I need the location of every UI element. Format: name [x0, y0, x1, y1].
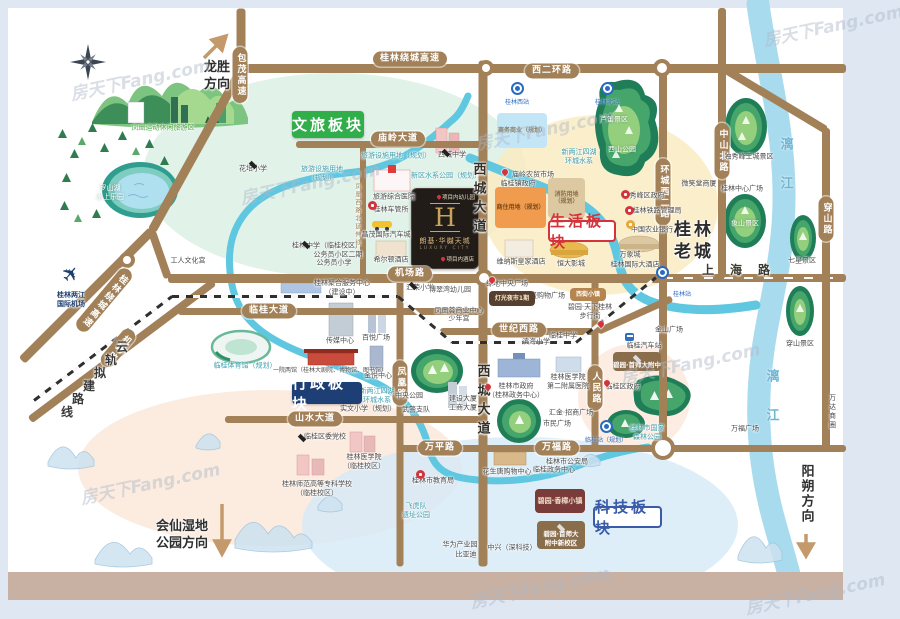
poi-box: 商住用地（规划） [495, 187, 546, 228]
map-label: 穿山景区 [786, 339, 814, 348]
government-icon [368, 201, 377, 210]
map-label: 桂林医学院 （临桂校区） [343, 453, 385, 471]
road-label: 万福路 [535, 441, 579, 456]
map-label: 临桂汽车站 [627, 341, 662, 350]
government-icon [621, 190, 630, 199]
road-junction [653, 59, 671, 77]
map-label: 中央公园 [395, 391, 423, 400]
road-segment [659, 68, 667, 450]
map-label: 汇金·招商广场 [549, 408, 593, 417]
metro-station-icon [511, 82, 524, 95]
map-label: 临桂中学 [549, 331, 577, 340]
district-badge: 文旅板块 [292, 111, 364, 138]
map-label: 比亚迪 [456, 550, 477, 559]
map-label: 桂林师范高等专科学校 （临桂校区） [282, 480, 352, 498]
district-badge: 生活板块 [548, 220, 616, 242]
rail-line-label: 路 [72, 392, 84, 408]
rail-line-label: 建 [83, 379, 95, 395]
map-label: 维纳斯皇家酒店 [497, 257, 546, 266]
road-label: 世纪西路 [492, 323, 546, 338]
map-bottom-band [8, 572, 843, 600]
road-label: 中山北路 [715, 123, 730, 179]
map-label: 传媒中心 [326, 336, 354, 345]
road-label: 人民路 [588, 366, 603, 411]
map-label: 西城大道 [473, 364, 490, 440]
map-label: 桂林老城 [672, 219, 716, 263]
map-label: 凤凰运动休闲旅游区 [132, 123, 195, 132]
map-label: 漓江 [762, 369, 779, 447]
pin-icon [436, 194, 442, 200]
rail-line-label: 轨 [105, 353, 117, 369]
district-badge: 行政板块 [292, 382, 362, 404]
road-segment [397, 278, 404, 566]
map-label: 临桂区委党校 [304, 432, 346, 441]
road-junction [478, 60, 494, 76]
map-label: 滨海小学 [522, 337, 550, 346]
map-label: 桂林中心广场 [721, 184, 763, 193]
government-icon [416, 470, 425, 479]
government-icon [625, 206, 634, 215]
map-label: 新两江四湖 环城水系 [562, 148, 597, 166]
railway-segment [452, 341, 576, 344]
map-label: 桂林市国家 森林公园 [630, 424, 665, 442]
map-label: 中国农业银行 [631, 225, 673, 234]
map-label: 桂林医学院 第二附属医院 [547, 373, 589, 391]
map-label: 万达商圈 [827, 394, 836, 430]
map-label: 希尔顿酒店 [374, 255, 409, 264]
road-label: 庙岭大道 [371, 132, 425, 147]
rail-line-label: 拟 [94, 366, 106, 382]
direction-label: 阳朔方向 [797, 464, 814, 524]
map-label: 金悦中心 [364, 371, 392, 380]
map-label: 罗山湖 水上乐园 [96, 184, 124, 202]
map-label: 万福广场 [731, 424, 759, 433]
poi-box-label: 西街小镇 [576, 291, 600, 299]
metro-station-icon [600, 420, 613, 433]
map-label: 公务员小学 [317, 258, 352, 267]
map-label: 花生唐购物中心 [483, 467, 532, 476]
poi-box: 西街小镇 [570, 288, 606, 301]
school-icon [408, 281, 418, 288]
map-label: 秀峰区政府 [630, 191, 665, 200]
metro-station-label: 桂林西站 [505, 97, 529, 106]
map-label: 桂林聚合服务中心 （建设中） [314, 279, 370, 297]
map-label: 上海路 [702, 263, 786, 279]
road-junction [119, 252, 135, 268]
poi-box-label: 消防用地 （规划） [554, 191, 578, 206]
map-label: 博翠湾幼儿园 [429, 285, 471, 294]
poi-box-label: 碧园·香樟小镇 [538, 497, 583, 506]
map-label: 金山广场 [655, 325, 683, 334]
map-label: 工人文化宫 [171, 256, 206, 265]
poi-box-label: 商住用地（规划） [496, 204, 544, 212]
road-label: 西二环路 [525, 64, 579, 79]
road-label: 临桂大道 [242, 304, 296, 319]
map-label: 昌茂国际汽车城 [362, 230, 411, 239]
metro-station-icon [656, 266, 669, 279]
map-label: 独秀峰王城景区 [725, 152, 774, 161]
metro-station-icon [601, 82, 614, 95]
map-label: 桂林铁路管理局 [633, 206, 682, 215]
road-label: 穿山路 [819, 197, 834, 242]
map-label: 万象城 [620, 250, 641, 259]
school-icon [297, 433, 307, 440]
map-label: 恒大影城 [557, 259, 585, 268]
map-label: 临桂政务中心 [533, 465, 575, 474]
project-hotel-label: 项目内酒店 [441, 255, 474, 263]
school-icon [248, 160, 258, 167]
map-label: 桂林市公安局 [546, 457, 588, 466]
map-label: 桂林车管所 [374, 205, 409, 214]
map-label: 武警支队 [402, 405, 430, 414]
map-label: 中兴（深科技） [488, 543, 537, 552]
map-label: 百悦广场 [362, 333, 390, 342]
project-subtitle: LUXURY CITY [412, 246, 478, 251]
metro-station-label: 临桂站（规划） [585, 435, 627, 444]
road-label: 机场路 [388, 267, 432, 282]
road-label: 桂林绕城高速 [373, 52, 447, 67]
poi-box-label: 碧园·首师大 附中新校区 [544, 530, 579, 546]
bus-station-icon [625, 333, 634, 341]
map-label: 漓江 [776, 137, 793, 215]
road-label: 包茂高速 [233, 47, 248, 103]
map-label: 七星景区 [788, 256, 816, 265]
map-label: 微笑堂商厦 [682, 179, 717, 188]
map-label: 桂林国际大酒店 [611, 260, 660, 269]
map-label: 华为产业园 [443, 540, 478, 549]
map-label: 新两江四湖 环城水系 [360, 387, 395, 405]
poi-box: 碧园·香樟小镇 [535, 489, 585, 513]
poi-box: 碧园·首师大 附中新校区 [537, 521, 585, 549]
district-badge: 科技板块 [593, 506, 662, 528]
map-label: 临桂体育馆（规划） [214, 361, 277, 370]
metro-station-label: 桂林站 [673, 289, 691, 298]
school-icon [301, 240, 311, 247]
map-label: 飞虎队 遗址公园 [402, 502, 430, 520]
map-label: 桂林两江 国际机场 [57, 291, 85, 309]
poi-box: 灯光夜市1期 [489, 291, 535, 306]
school-icon [441, 148, 451, 155]
map-label: 西城大道 [469, 162, 486, 238]
rail-line-label: 云 [116, 340, 128, 356]
map-label: 桂林市政府 （桂林政务中心） [488, 382, 544, 400]
bank-icon [626, 220, 635, 229]
road-label: 万平路 [418, 441, 462, 456]
map-label: 凤凰西路北延伸线 [353, 183, 361, 247]
map-label: 碧园·天下桂林 步行街 [568, 303, 612, 321]
map-label: 旅游综合医院 [373, 192, 415, 201]
map-label: 象山景区 [731, 219, 759, 228]
map-label: 市民广场 [543, 419, 571, 428]
road-segment [225, 416, 484, 423]
map-label: 西山公园 [608, 145, 636, 154]
map-label: 庙岭农贸市场 [512, 170, 554, 179]
map-label: 少年宫 [449, 314, 470, 323]
direction-label: 会仙湿地 公园方向 [156, 519, 208, 553]
rail-line-label: 线 [61, 405, 73, 421]
graduation-cap-icon [556, 523, 566, 530]
poi-box-label: 灯光夜市1期 [495, 295, 529, 303]
map-stage: 项目内幼儿园 H 朗基·华樾天城 LUXURY CITY 项目内酒店 ✈ 桂林绕… [0, 0, 900, 600]
